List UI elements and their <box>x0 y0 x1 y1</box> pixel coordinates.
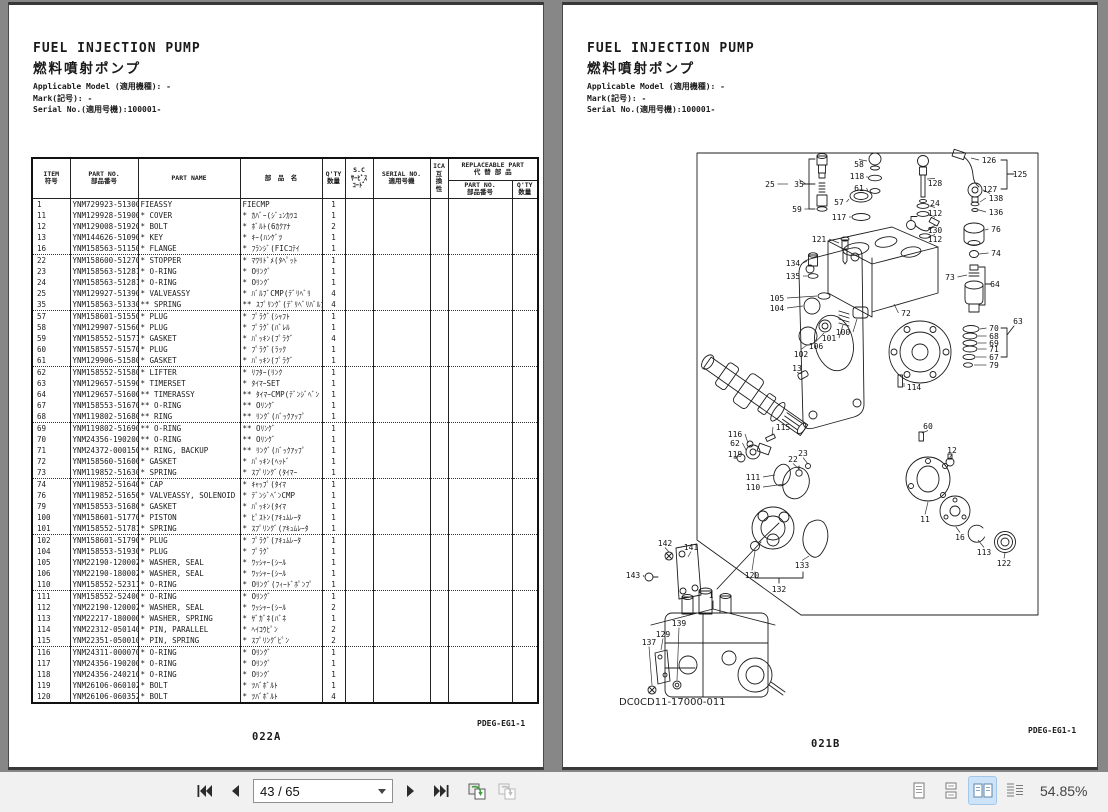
col-part-name: PART NAME <box>138 158 240 198</box>
table-row: 115YNM22351-050010* PIN, SPRING* ｽﾌﾟﾘﾝｸﾞ… <box>32 635 538 647</box>
col-serial-no: SERIAL NO. 適用号機 <box>373 158 430 198</box>
first-page-icon <box>196 784 214 798</box>
callout-leader-line <box>787 306 803 308</box>
callout-label: 62 <box>730 439 740 448</box>
col-replaceable: REPLACEABLE PART 代 替 部 品 <box>448 158 538 180</box>
callout-label: 138 <box>989 194 1004 203</box>
callout-label: 58 <box>854 160 864 169</box>
callout-label: 135 <box>786 272 801 281</box>
callout-label: 126 <box>982 156 997 165</box>
callout-label: 74 <box>991 249 1001 258</box>
view-facing-continuous-button[interactable] <box>1001 777 1028 804</box>
table-row: 67YNM158553-51670** O-RING** Oﾘﾝｸﾞ1 <box>32 400 538 411</box>
doc-code: PDEG-EG1-1 <box>477 719 525 728</box>
insert-page-icon <box>468 783 486 800</box>
callout-label: 118 <box>850 172 865 181</box>
applicable-model-block: Applicable Model (適用機種): - Mark(記号): - S… <box>587 81 725 116</box>
view-facing-button[interactable] <box>969 777 996 804</box>
callout-label: 133 <box>795 561 810 570</box>
callout-label: 72 <box>901 309 911 318</box>
table-row: 22YNM158600-51270* STOPPER* ﾏﾜﾘﾄﾞﾒ(ﾀﾍﾟｯﾄ… <box>32 254 538 266</box>
col-item: ITEM 符号 <box>32 158 70 198</box>
exploded-diagram: 2535581186157117591282411213011212612512… <box>603 145 1083 730</box>
first-page-button[interactable] <box>193 778 217 804</box>
table-row: 1YNM729923-51300FIEASSYFIECMP1 <box>32 198 538 210</box>
table-row: 64YNM129657-51600** TIMERASSY** ﾀｲﾏｰCMP(… <box>32 389 538 400</box>
last-page-icon <box>432 784 450 798</box>
callout-label: 63 <box>1013 317 1023 326</box>
callout-label: 105 <box>770 294 785 303</box>
page-navigation: 43 / 65 <box>193 778 519 804</box>
view-continuous-button[interactable] <box>937 777 964 804</box>
callout-label: 101 <box>822 334 837 343</box>
callout-label: 128 <box>928 179 943 188</box>
table-row: 69YNM119802-51690** O-RING** Oﾘﾝｸﾞ1 <box>32 422 538 434</box>
table-row: 23YNM158563-51281* O-RING* Oﾘﾝｸﾞ1 <box>32 266 538 277</box>
col-part-no: PART NO. 部品番号 <box>70 158 138 198</box>
table-row: 114YNM22312-050140* PIN, PARALLEL* ﾍｲｺｳﾋ… <box>32 624 538 635</box>
page-title: FUEL INJECTION PUMP <box>33 41 201 56</box>
callout-label: 113 <box>977 548 992 557</box>
callout-leader-line <box>752 551 755 571</box>
callout-leader-line <box>743 443 747 450</box>
table-row: 70YNM24356-190200** O-RING** Oﾘﾝｸﾞ1 <box>32 434 538 445</box>
callout-label: 24 <box>930 199 940 208</box>
callout-label: 23 <box>798 449 808 458</box>
callout-label: 143 <box>626 571 641 580</box>
callout-leader-line <box>985 229 989 230</box>
sheet-code: 021B <box>811 738 840 750</box>
callout-leader-line <box>661 639 663 651</box>
table-row: 24YNM158563-51281* O-RING* Oﾘﾝｸﾞ1 <box>32 277 538 288</box>
callout-label: 137 <box>642 638 657 647</box>
table-row: 110YNM158552-52311* O-RING* Oﾘﾝｸﾞ(ﾌｨｰﾄﾞﾎ… <box>32 579 538 591</box>
previous-page-button[interactable] <box>223 778 247 804</box>
table-row: 74YNM119852-51640* CAP* ｷｬｯﾌﾟ(ﾀｲﾏ1 <box>32 478 538 490</box>
callout-leader-line <box>665 548 669 553</box>
callout-label: 125 <box>1013 170 1028 179</box>
callout-label: 139 <box>672 619 687 628</box>
callout-label: 59 <box>792 205 802 214</box>
callout-leader-line <box>956 527 960 533</box>
table-row: 13YNM144626-51090* KEY* ｷｰ(ﾊﾝｹﾞﾂ1 <box>32 232 538 243</box>
callout-label: 73 <box>945 273 955 282</box>
callout-leader-line <box>980 198 986 202</box>
callout-leader-line <box>979 210 986 212</box>
callout-label: 104 <box>770 304 785 313</box>
table-row: 68YNM119802-51680** RING** ﾘﾝｸﾞ(ﾊﾞｯｸｱｯﾌﾟ… <box>32 411 538 423</box>
callout-leader-line <box>688 552 691 558</box>
callout-label: 134 <box>786 259 801 268</box>
parts-table: ITEM 符号 PART NO. 部品番号 PART NAME 部 品 名 Q'… <box>31 157 539 704</box>
callout-label: 117 <box>832 213 847 222</box>
applicable-model-block: Applicable Model (適用機種): - Mark(記号): - S… <box>33 81 171 116</box>
meta-line: Serial No.(適用号機):100001- <box>33 105 161 114</box>
callout-label: 130 <box>928 226 943 235</box>
table-row: 112YNM22190-120002* WASHER, SEAL* ﾜｯｼｬｰ(… <box>32 602 538 613</box>
callout-leader-line <box>853 319 857 332</box>
previous-page-icon <box>229 784 241 798</box>
chevron-down-icon <box>378 789 386 794</box>
table-row: 12YNM129008-51920* BOLT* ﾎﾞﾙﾄ(6ｶｸｱﾅ2 <box>32 221 538 232</box>
callout-leader-line <box>677 628 679 681</box>
table-row: 59YNM158552-51571* GASKET* ﾊﾟｯｷﾝ(ﾌﾟﾗｸﾞ4 <box>32 333 538 344</box>
callout-leader-line <box>925 502 928 515</box>
last-page-button[interactable] <box>429 778 453 804</box>
callout-label: 79 <box>989 361 999 370</box>
callout-label: 142 <box>658 539 673 548</box>
table-row: 16YNM158563-51150* FLANGE* ﾌﾗﾝｼﾞ(FICｺﾃｲ1 <box>32 243 538 255</box>
callout-label: 141 <box>684 543 699 552</box>
table-row: 11YNM129928-51900* COVER* ｶﾊﾞｰ(ｼﾞｭﾝｶﾂﾕ1 <box>32 210 538 221</box>
meta-line: Applicable Model (適用機種): - <box>33 82 171 91</box>
callout-label: 132 <box>772 585 787 594</box>
callout-label: 64 <box>990 280 1000 289</box>
table-row: 106YNM22190-180002* WASHER, SEAL* ﾜｯｼｬｰ(… <box>32 568 538 579</box>
table-row: 102YNM158601-51790* PLUG* ﾌﾟﾗｸﾞ(ｱｷｭﾑﾚｰﾀ1 <box>32 534 538 546</box>
col-replaceable-qty: Q'TY 数量 <box>512 180 538 198</box>
table-row: 113YNM22217-180000* WASHER, SPRING* ｻﾞｶﾞ… <box>32 613 538 624</box>
callout-leader-line <box>979 253 989 254</box>
meta-line: Serial No.(適用号機):100001- <box>587 105 715 114</box>
sheet-code: 022A <box>252 731 281 743</box>
callout-label: 115 <box>776 423 791 432</box>
callout-label: 100 <box>836 328 851 337</box>
facing-continuous-icon <box>1005 782 1025 799</box>
callout-leader-line <box>971 158 979 160</box>
table-row: 25YNM129927-51390* VALVEASSY* ﾊﾞﾙﾌﾞCMP(ﾃ… <box>32 288 538 299</box>
col-replaceable-part-no: PART NO. 部品番号 <box>448 180 512 198</box>
table-row: 118YNM24356-240210* O-RING* Oﾘﾝｸﾞ1 <box>32 669 538 680</box>
callout-label: 22 <box>788 455 798 464</box>
zoom-level-label: 54.85% <box>1040 783 1087 799</box>
extract-page-icon <box>498 783 516 800</box>
table-row: 71YNM24372-000150** RING, BACKUP** ﾘﾝｸﾞ(… <box>32 445 538 456</box>
page-left-parts-list: FUEL INJECTION PUMP 燃料噴射ポンプ Applicable M… <box>8 2 544 770</box>
page-title-jp: 燃料噴射ポンプ <box>33 57 141 77</box>
callout-leader-line <box>803 458 808 465</box>
parts-table-body: 1YNM729923-51300FIEASSYFIECMP111YNM12992… <box>32 198 538 703</box>
callout-leader-line <box>958 275 968 277</box>
callout-label: 127 <box>983 185 998 194</box>
single-page-icon <box>909 782 929 799</box>
table-row: 119YNM26106-060102* BOLT* ﾂﾊﾞﾎﾞﾙﾄ1 <box>32 680 538 691</box>
callout-label: 112 <box>928 235 943 244</box>
callout-layer: 2535581186157117591282411213011212612512… <box>626 156 1028 685</box>
table-row: 79YNM158553-51680* GASKET* ﾊﾟｯｷﾝ(ﾀｲﾏ1 <box>32 501 538 512</box>
drawing-number: DC0CD11-17000-011 <box>619 697 726 708</box>
callout-leader-line <box>745 434 748 443</box>
callout-label: 116 <box>728 430 743 439</box>
table-row: 58YNM129907-51560* PLUG* ﾌﾟﾗｸﾞ(ﾊﾞﾚﾙ1 <box>32 322 538 333</box>
bottom-toolbar: 43 / 65 <box>0 772 1108 812</box>
meta-line: Mark(記号): - <box>33 94 92 103</box>
extract-page-button[interactable] <box>495 778 519 804</box>
callout-leader-line <box>847 199 850 202</box>
callout-label: 122 <box>997 559 1012 568</box>
callout-label: 25 <box>765 180 775 189</box>
callout-label: 76 <box>991 225 1001 234</box>
table-row: 117YNM24356-190200* O-RING* Oﾘﾝｸﾞ1 <box>32 658 538 669</box>
callout-label: 129 <box>656 630 671 639</box>
table-row: 76YNM119852-51650* VALVEASSY, SOLENOID* … <box>32 490 538 501</box>
page-right-diagram: FUEL INJECTION PUMP 燃料噴射ポンプ Applicable M… <box>562 2 1098 770</box>
table-row: 116YNM24311-000070* O-RING* Oﾘﾝｸﾞ1 <box>32 646 538 658</box>
callout-label: 12 <box>947 446 957 455</box>
callout-leader-line <box>643 575 644 577</box>
col-part-name-jp: 部 品 名 <box>240 158 322 198</box>
view-mode-controls <box>905 777 1028 804</box>
callout-label: 102 <box>794 350 809 359</box>
table-row: 62YNM158552-51580* LIFTER* ﾘﾌﾀｰ(ﾘﾝｸ1 <box>32 366 538 378</box>
doc-code: PDEG-EG1-1 <box>1028 726 1076 735</box>
callout-leader-line <box>649 647 652 686</box>
table-row: 57YNM158601-51550* PLUG* ﾌﾟﾗｸﾞ(ｼｬﾌﾄ1 <box>32 310 538 322</box>
callout-label: 13 <box>792 364 802 373</box>
diagram-frame <box>697 153 1038 615</box>
view-single-page-button[interactable] <box>905 777 932 804</box>
callout-leader-line <box>1004 553 1005 559</box>
meta-line: Mark(記号): - <box>587 94 646 103</box>
table-row: 120YNM26106-060352* BOLT* ﾂﾊﾞﾎﾞﾙﾄ4 <box>32 691 538 703</box>
page-number-value: 43 / 65 <box>260 784 374 799</box>
page-title: FUEL INJECTION PUMP <box>587 41 755 56</box>
callout-label: 119 <box>728 450 743 459</box>
pdf-viewer: FUEL INJECTION PUMP 燃料噴射ポンプ Applicable M… <box>0 0 1108 812</box>
callout-label: 16 <box>955 533 965 542</box>
table-row: 60YNM158557-51570* PLUG* ﾌﾟﾗｸﾞ(ﾗｯｸ1 <box>32 344 538 355</box>
table-row: 73YNM119852-51630* SPRING* ｽﾌﾟﾘﾝｸﾞ(ﾀｲﾏｰ1 <box>32 467 538 479</box>
callout-label: 136 <box>989 208 1004 217</box>
callout-label: 60 <box>923 422 933 431</box>
col-qty: Q'TY 数量 <box>322 158 345 198</box>
callout-label: 1 <box>709 591 714 600</box>
table-row: 100YNM158601-51770* PISTON* ﾋﾟｽﾄﾝ(ｱｷｭﾑﾚｰ… <box>32 512 538 523</box>
table-row: 105YNM22190-120002* WASHER, SEAL* ﾜｯｼｬｰ(… <box>32 557 538 568</box>
table-row: 63YNM129657-51590* TIMERSET* ﾀｲﾏｰSET1 <box>32 378 538 389</box>
callout-label: 111 <box>746 473 761 482</box>
callout-label: 61 <box>854 184 864 193</box>
callout-label: 106 <box>809 342 824 351</box>
callout-label: 35 <box>794 180 804 189</box>
facing-pages-icon <box>973 782 993 799</box>
insert-page-button[interactable] <box>465 778 489 804</box>
callout-label: 112 <box>928 209 943 218</box>
callout-label: 11 <box>920 515 930 524</box>
continuous-pages-icon <box>941 782 961 799</box>
table-row: 101YNM158552-51781* SPRING* ｽﾌﾟﾘﾝｸﾞ(ｱｷｭﾑ… <box>32 523 538 535</box>
table-row: 104YNM158553-51930* PLUG* ﾌﾟﾗｸﾞ1 <box>32 546 538 557</box>
callout-label: 110 <box>746 483 761 492</box>
table-row: 61YNM129906-51580* GASKET* ﾊﾟｯｷﾝ(ﾌﾟﾗｸﾞ1 <box>32 355 538 367</box>
callout-label: 121 <box>812 235 827 244</box>
table-row: 111YNM158552-52400* O-RING* Oﾘﾝｸﾞ1 <box>32 590 538 602</box>
page-title-jp: 燃料噴射ポンプ <box>587 57 695 77</box>
page-number-combobox[interactable]: 43 / 65 <box>253 779 393 803</box>
callout-label: 120 <box>745 571 760 580</box>
meta-line: Applicable Model (適用機種): - <box>587 82 725 91</box>
callout-leader-line <box>980 328 987 329</box>
table-row: 35YNM158563-51330** SPRING** ｽﾌﾟﾘﾝｸﾞ(ﾃﾞﾘ… <box>32 299 538 311</box>
col-ica: ICA 互 換 性 <box>430 158 448 198</box>
table-row: 72YNM158560-51600* GASKET* ﾊﾟｯｷﾝ(ﾍｯﾄﾞ1 <box>32 456 538 467</box>
parts-table-header: ITEM 符号 PART NO. 部品番号 PART NAME 部 品 名 Q'… <box>32 158 538 198</box>
callout-label: 57 <box>834 198 844 207</box>
next-page-icon <box>405 784 417 798</box>
next-page-button[interactable] <box>399 778 423 804</box>
callout-label: 114 <box>907 383 922 392</box>
col-service-code: S.C ｻｰﾋﾞｽ ｺｰﾄﾞ <box>345 158 373 198</box>
